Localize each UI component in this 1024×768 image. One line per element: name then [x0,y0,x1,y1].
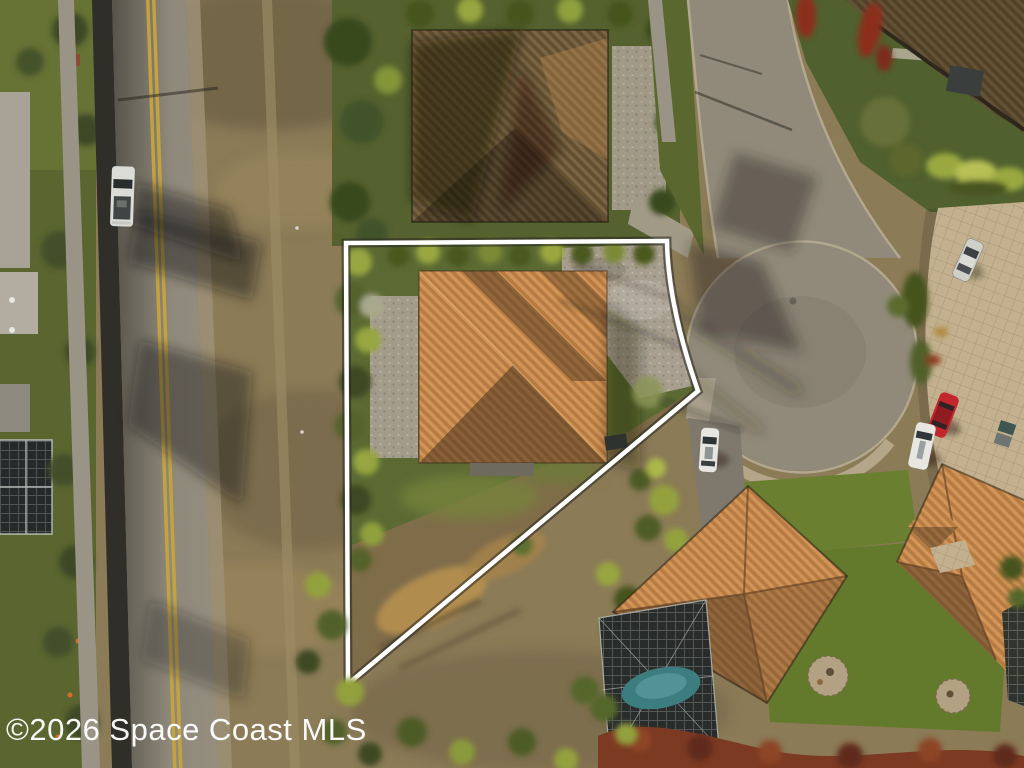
west-pool-enclosure [0,440,52,534]
aerial-photo: ©2026 Space Coast MLS [0,0,1024,768]
utility-marker [295,226,299,230]
north-house-roof [412,30,608,222]
lot-side-patio [370,296,418,458]
west-patio [0,92,30,268]
west-building2-roof [0,384,30,432]
rear-porch [470,463,534,476]
watermark: ©2026 Space Coast MLS [6,712,367,748]
aerial-scene [0,0,1024,768]
west-building-roof [0,272,38,334]
utility-marker [300,430,304,434]
subject-house-roof [419,271,607,476]
north-house-yard [324,0,694,258]
